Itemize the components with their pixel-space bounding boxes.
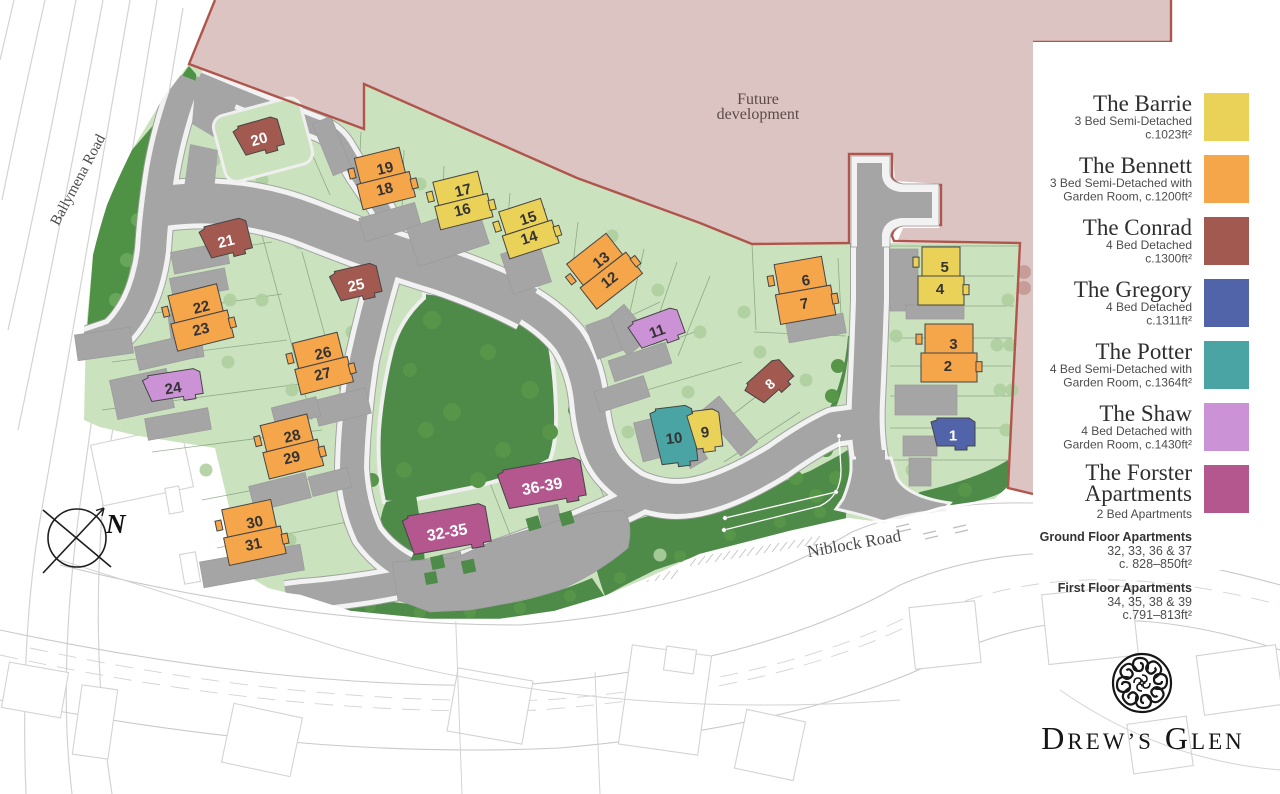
svg-text:Garden Room, c.1430ft²: Garden Room, c.1430ft²	[1063, 438, 1192, 452]
svg-text:The Bennett: The Bennett	[1079, 153, 1193, 178]
svg-text:The Barrie: The Barrie	[1093, 91, 1192, 116]
svg-text:c.1311ft²: c.1311ft²	[1146, 314, 1192, 328]
svg-text:Garden Room, c.1364ft²: Garden Room, c.1364ft²	[1063, 376, 1192, 390]
svg-text:34, 35, 38 & 39: 34, 35, 38 & 39	[1107, 595, 1192, 609]
svg-text:2 Bed Apartments: 2 Bed Apartments	[1097, 507, 1192, 521]
svg-text:c. 828–850ft²: c. 828–850ft²	[1119, 557, 1192, 571]
svg-text:5: 5	[941, 259, 949, 276]
svg-text:24: 24	[164, 379, 184, 399]
svg-text:10: 10	[665, 429, 684, 448]
svg-text:30: 30	[245, 513, 265, 533]
svg-text:The Potter: The Potter	[1096, 339, 1193, 364]
svg-text:4 Bed Detached: 4 Bed Detached	[1106, 300, 1192, 314]
svg-text:Apartments: Apartments	[1085, 481, 1192, 506]
svg-text:The Conrad: The Conrad	[1083, 215, 1193, 240]
svg-text:development: development	[717, 106, 800, 123]
svg-text:2: 2	[944, 358, 952, 375]
svg-text:4 Bed Detached: 4 Bed Detached	[1106, 238, 1192, 252]
svg-text:Garden Room, c.1200ft²: Garden Room, c.1200ft²	[1063, 190, 1192, 204]
svg-text:31: 31	[244, 535, 264, 555]
svg-text:The Gregory: The Gregory	[1074, 277, 1193, 302]
svg-text:c.1300ft²: c.1300ft²	[1145, 252, 1192, 266]
svg-text:32, 33, 36 & 37: 32, 33, 36 & 37	[1107, 544, 1192, 558]
svg-text:The Shaw: The Shaw	[1099, 401, 1192, 426]
svg-text:4: 4	[936, 281, 945, 298]
svg-text:3 Bed Semi-Detached with: 3 Bed Semi-Detached with	[1050, 176, 1192, 190]
svg-text:Ground Floor Apartments: Ground Floor Apartments	[1040, 530, 1192, 544]
svg-text:First Floor Apartments: First Floor Apartments	[1058, 581, 1192, 595]
svg-text:3 Bed Semi-Detached: 3 Bed Semi-Detached	[1075, 114, 1192, 128]
svg-text:N: N	[105, 509, 127, 539]
svg-text:4 Bed Detached with: 4 Bed Detached with	[1081, 424, 1192, 438]
svg-text:1: 1	[949, 427, 957, 444]
svg-text:c.1023ft²: c.1023ft²	[1145, 128, 1192, 142]
svg-text:3: 3	[949, 336, 957, 353]
svg-text:4 Bed Semi-Detached with: 4 Bed Semi-Detached with	[1050, 362, 1192, 376]
svg-text:c.791–813ft²: c.791–813ft²	[1123, 608, 1193, 622]
